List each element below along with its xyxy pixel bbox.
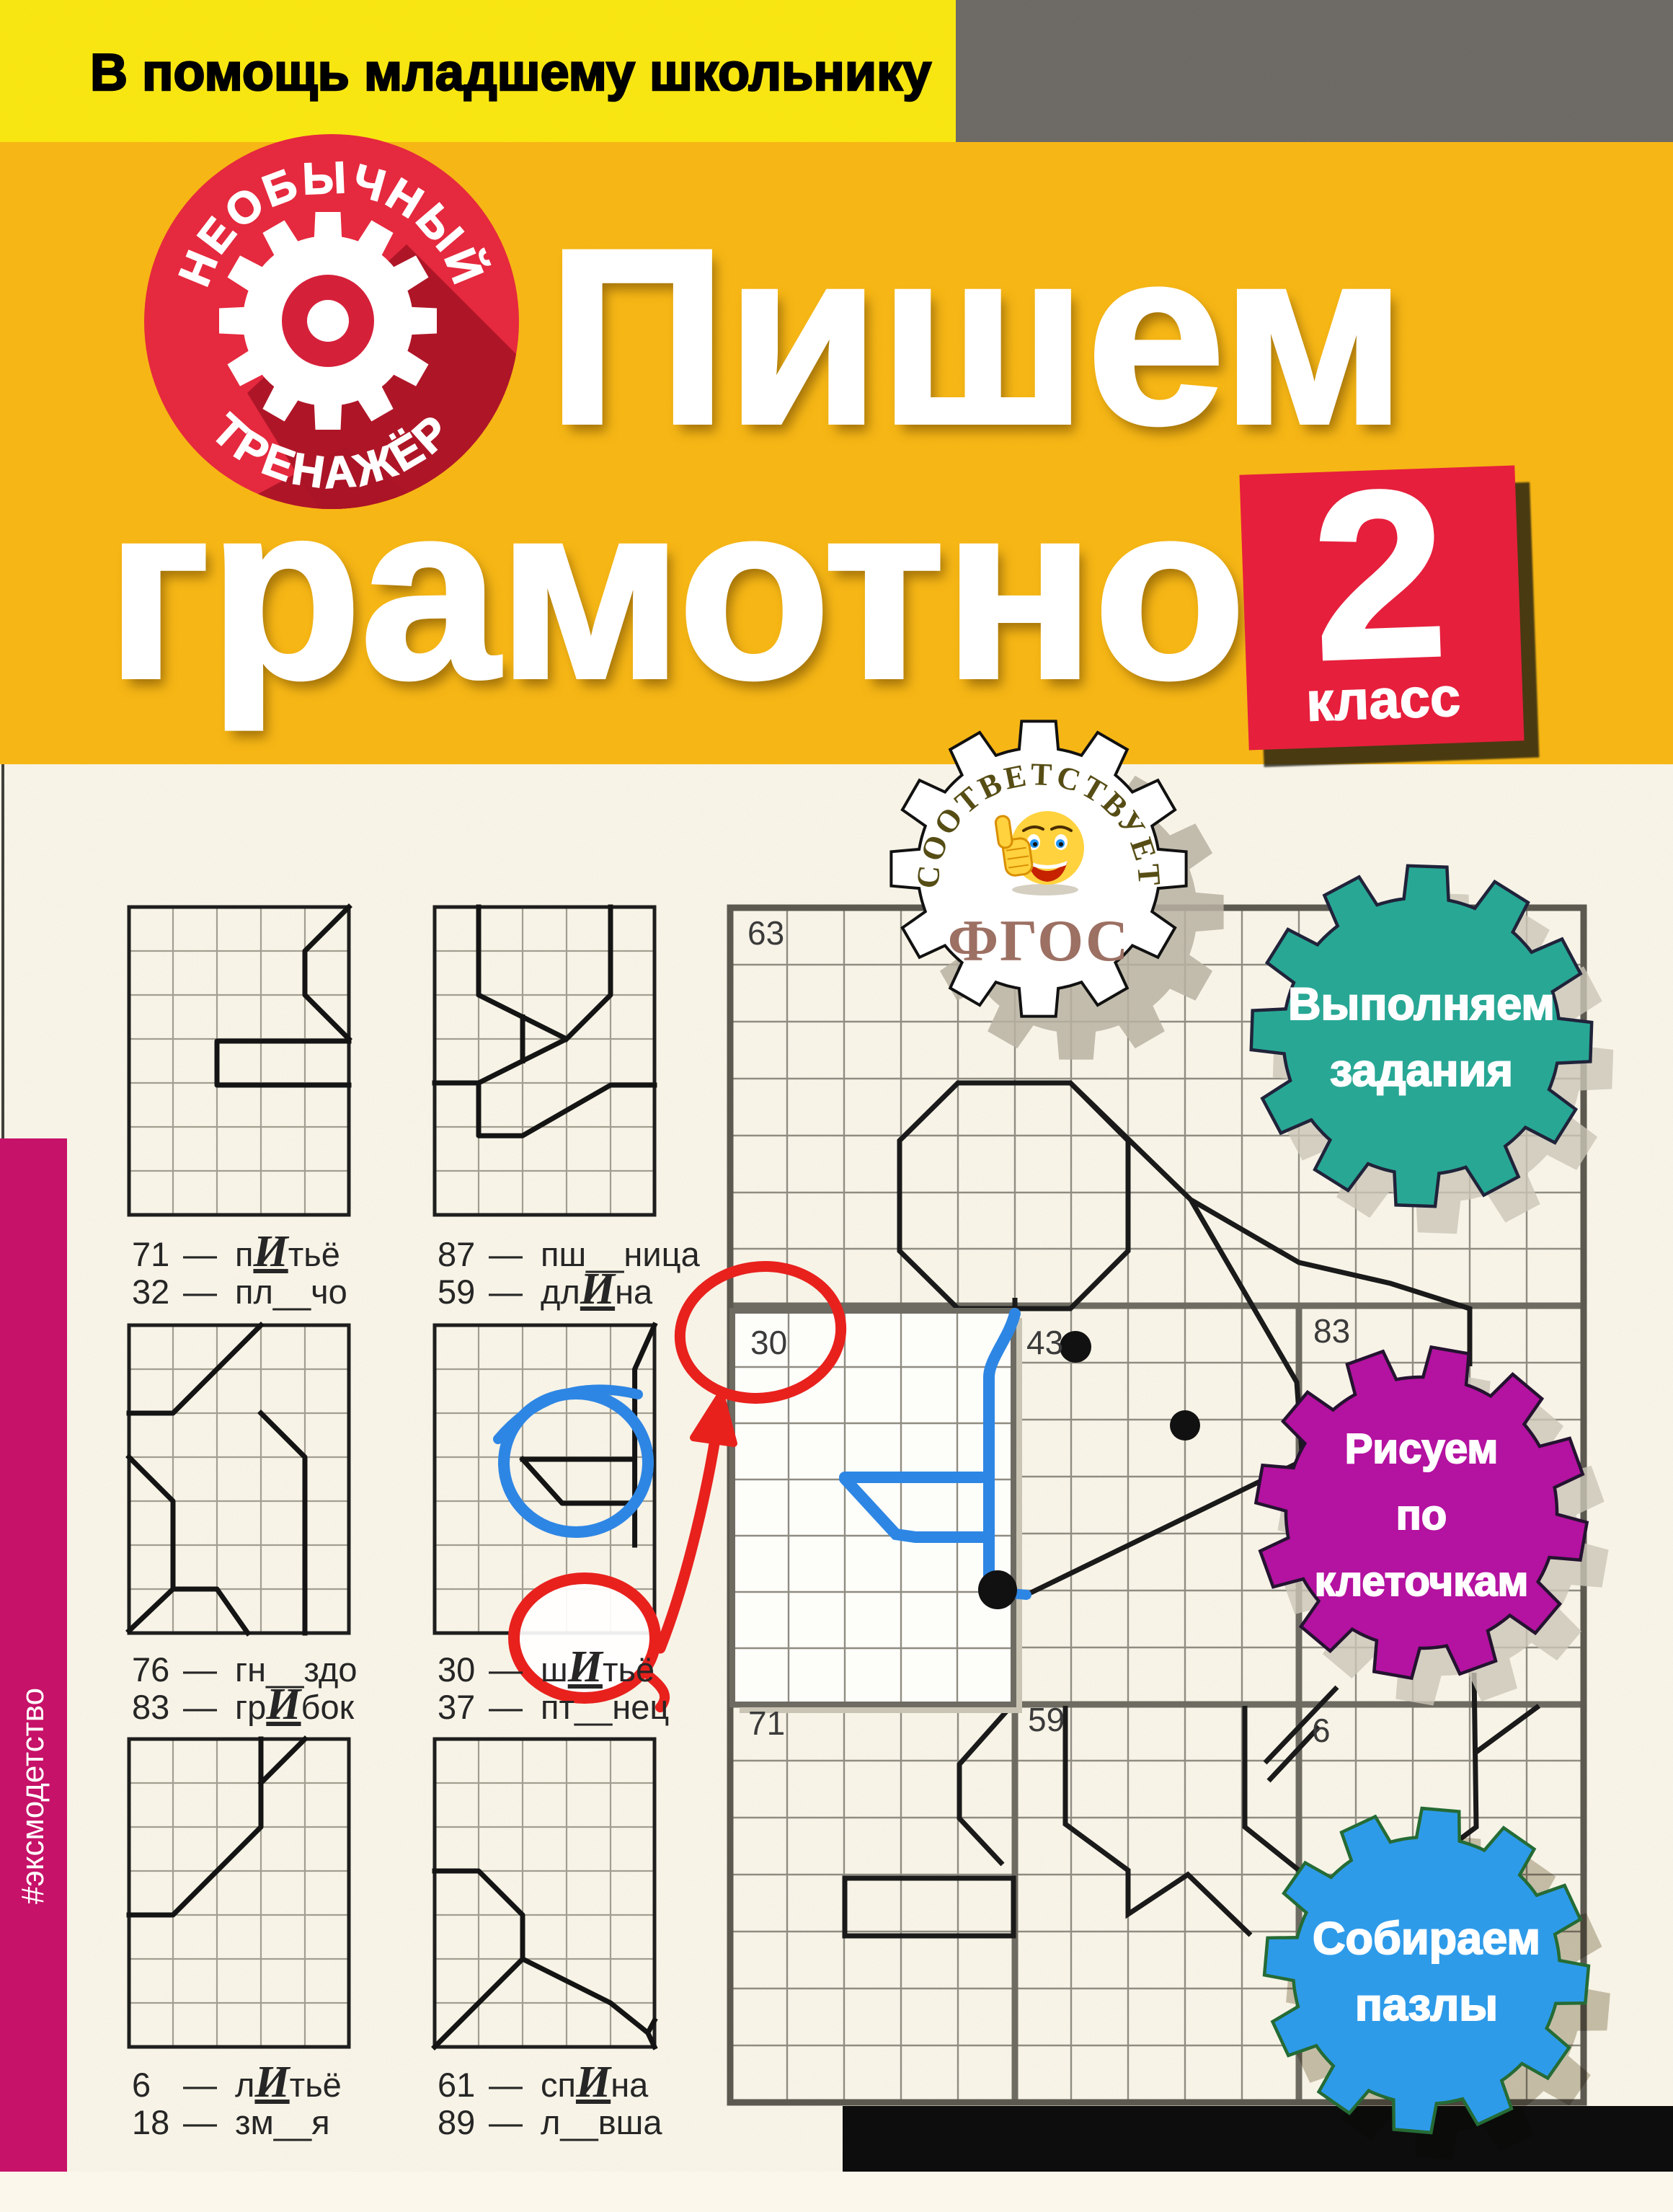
svg-text:43: 43 — [1026, 1324, 1063, 1361]
svg-text:ФГОС: ФГОС — [948, 908, 1130, 973]
svg-text:пазлы: пазлы — [1355, 1980, 1498, 2030]
svg-text:задания: задания — [1330, 1045, 1513, 1096]
svg-text:Выполняем: Выполняем — [1288, 979, 1555, 1030]
svg-text:30: 30 — [750, 1324, 787, 1361]
svg-text:Собираем: Собираем — [1313, 1914, 1540, 1964]
svg-text:по: по — [1396, 1492, 1447, 1539]
svg-text:клеточкам: клеточкам — [1315, 1558, 1529, 1605]
svg-text:59: 59 — [1028, 1701, 1065, 1738]
svg-text:Рисуем: Рисуем — [1345, 1425, 1499, 1472]
